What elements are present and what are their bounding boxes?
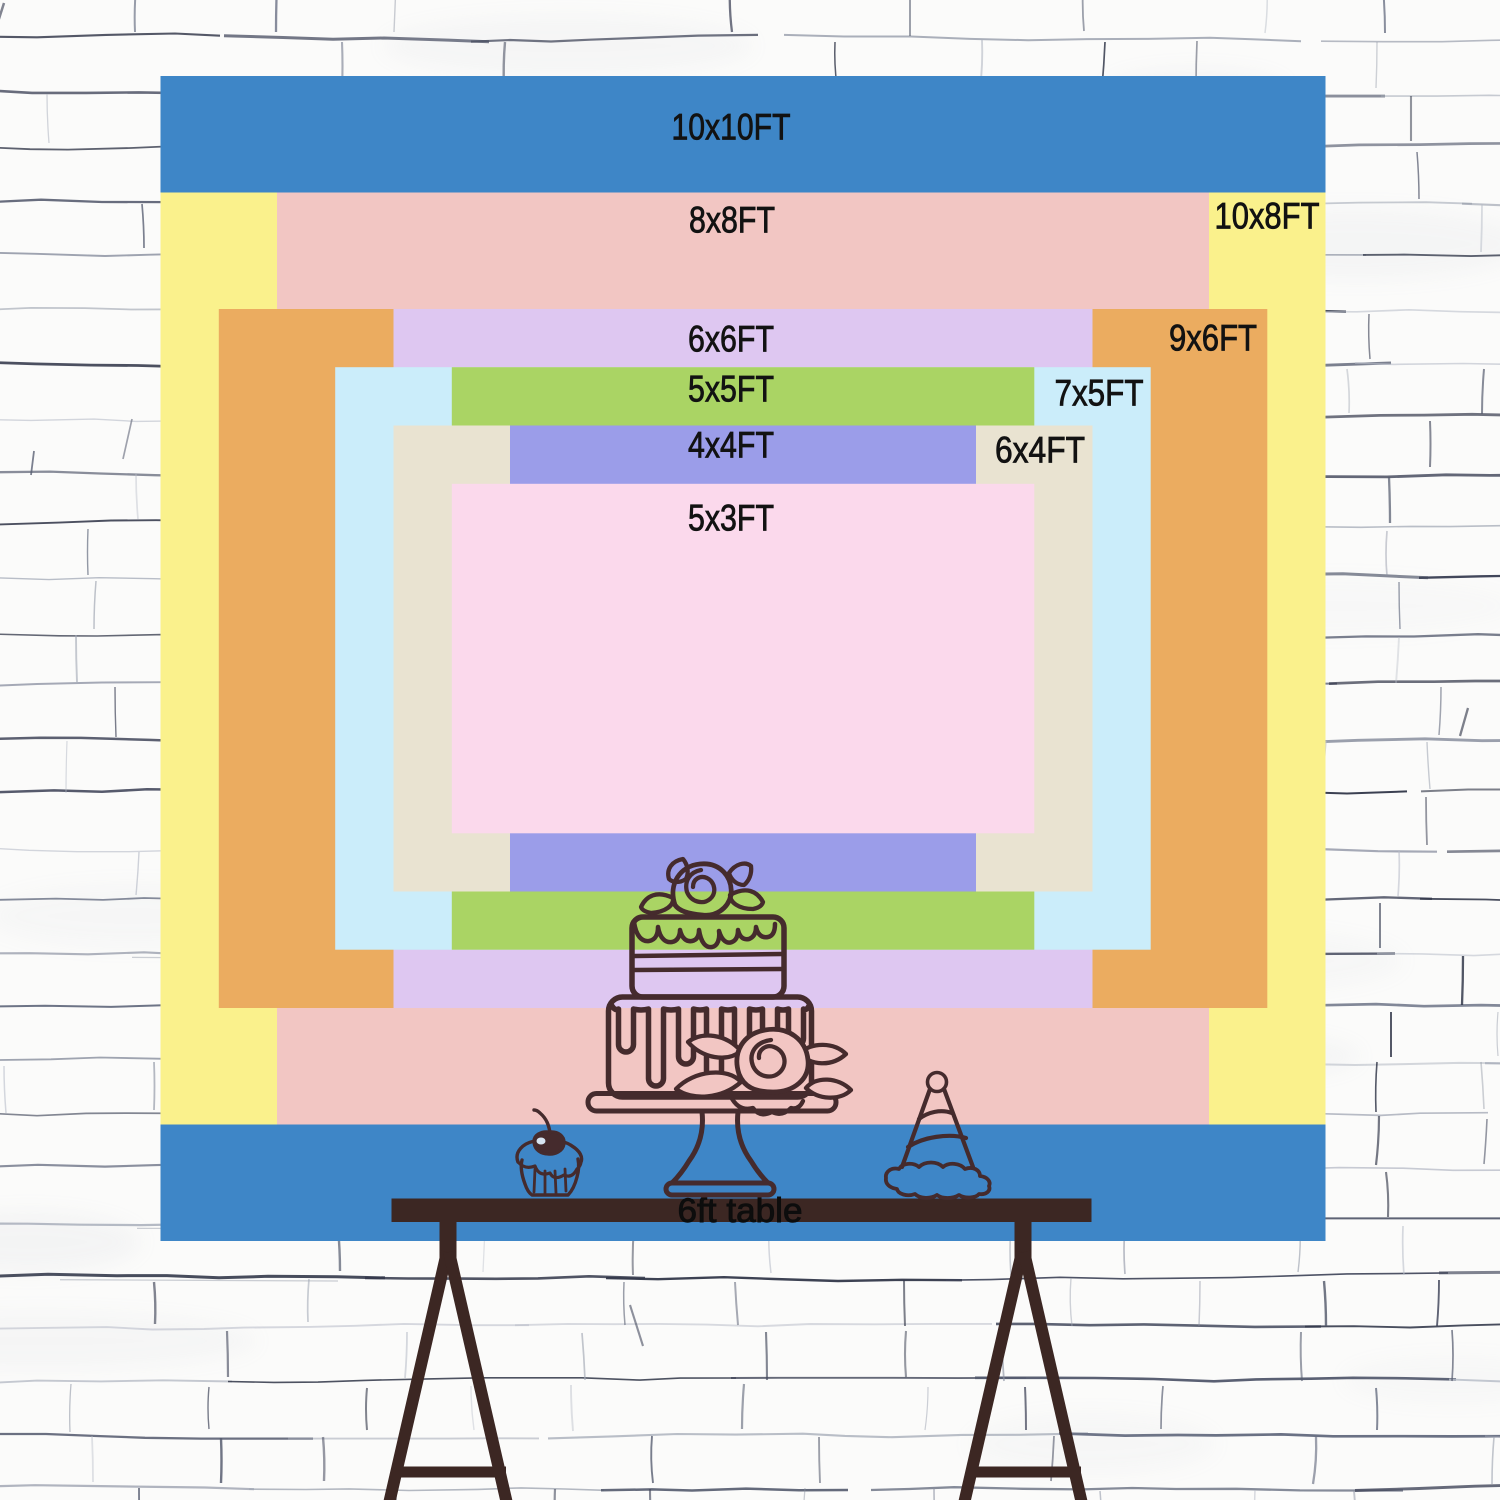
svg-text:6ft table: 6ft table <box>678 1192 803 1230</box>
svg-text:8x8FT: 8x8FT <box>689 200 775 241</box>
svg-text:6x4FT: 6x4FT <box>995 430 1085 471</box>
svg-text:10x8FT: 10x8FT <box>1215 196 1320 237</box>
svg-text:4x4FT: 4x4FT <box>688 425 774 466</box>
svg-text:7x5FT: 7x5FT <box>1055 373 1144 414</box>
svg-text:6x6FT: 6x6FT <box>688 319 774 360</box>
svg-text:5x5FT: 5x5FT <box>688 369 774 410</box>
svg-text:10x10FT: 10x10FT <box>672 107 791 148</box>
svg-text:9x6FT: 9x6FT <box>1169 318 1257 359</box>
svg-text:5x3FT: 5x3FT <box>688 498 774 539</box>
